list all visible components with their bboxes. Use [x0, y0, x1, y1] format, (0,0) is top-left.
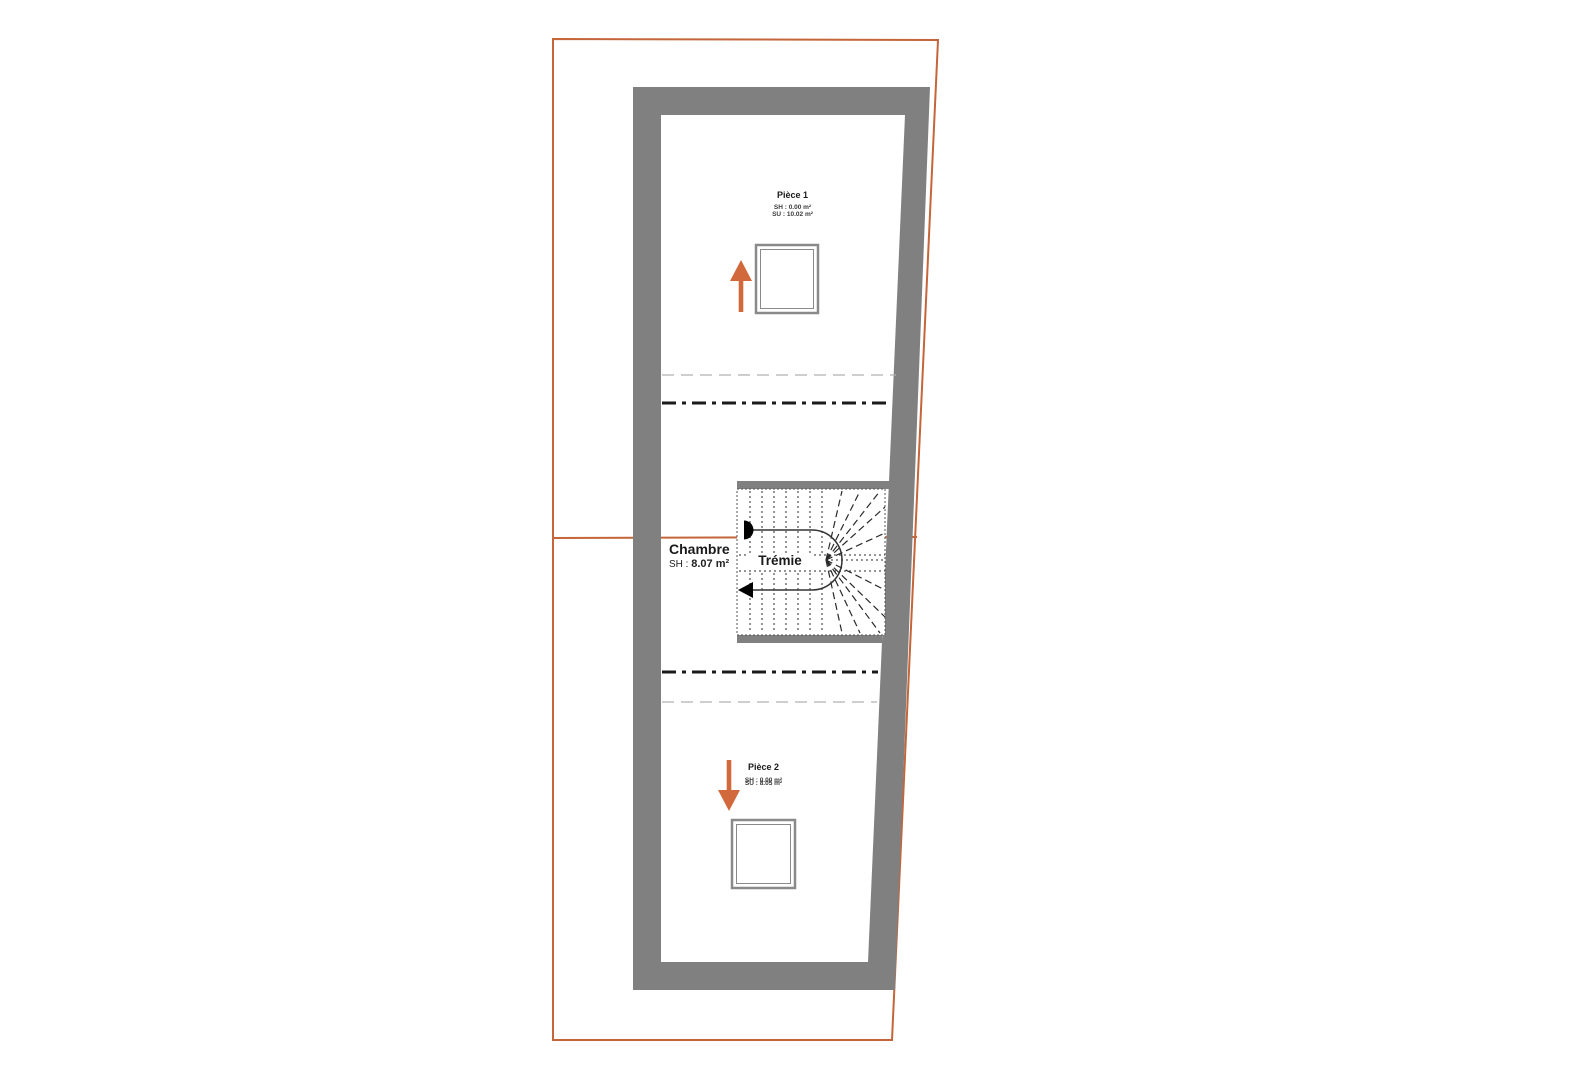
chambre-sh-label: SH : — [669, 559, 688, 570]
room-label-chambre: Chambre — [669, 541, 730, 557]
floor-plan-canvas: Pièce 1 SH : 0.00 m² SU : 10.02 m² Chamb… — [0, 0, 1573, 1079]
room-stats-chambre: SH : 8.07 m² — [669, 558, 729, 570]
room-label-tremie: Trémie — [748, 553, 812, 568]
room-label-piece1: Pièce 1 — [740, 190, 845, 200]
roof-window-2 — [732, 820, 795, 888]
stair-enclosure-wall-top — [737, 481, 889, 489]
piece1-sh: SH : 0.00 m² — [774, 204, 811, 211]
stair-enclosure-wall-bottom — [737, 635, 882, 643]
room-label-piece2: Pièce 2 — [711, 762, 816, 772]
room-stats-piece1: SH : 0.00 m² SU : 10.02 m² — [740, 204, 845, 218]
room-stats-piece2: SH : 0.00 m² SU : 8.05 m² — [711, 777, 816, 787]
chambre-sh-value: 8.07 m² — [691, 558, 729, 570]
floor-plan-drawing — [0, 0, 1573, 1079]
roof-window-1 — [756, 245, 818, 313]
piece1-su: SU : 10.02 m² — [772, 211, 813, 218]
slope-arrow-up — [730, 260, 752, 312]
piece2-su: SU : 8.05 m² — [711, 780, 816, 787]
